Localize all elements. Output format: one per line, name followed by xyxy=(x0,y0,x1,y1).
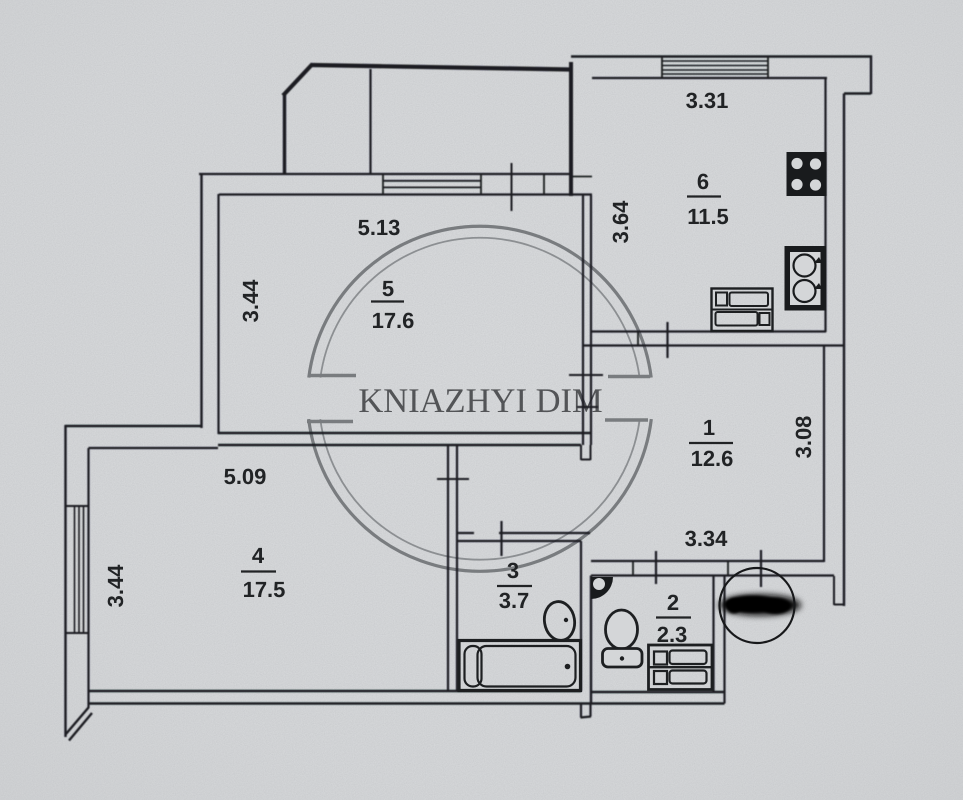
svg-text:5.13: 5.13 xyxy=(358,215,401,240)
svg-text:3.44: 3.44 xyxy=(238,279,263,323)
svg-text:3.64: 3.64 xyxy=(608,200,633,244)
svg-text:3.08: 3.08 xyxy=(791,416,816,459)
svg-text:3: 3 xyxy=(507,558,519,583)
svg-text:12.6: 12.6 xyxy=(691,446,734,471)
svg-text:3.7: 3.7 xyxy=(499,588,530,613)
svg-text:4: 4 xyxy=(252,543,265,568)
svg-text:17.6: 17.6 xyxy=(372,308,415,333)
svg-text:3.44: 3.44 xyxy=(103,564,128,608)
svg-text:5: 5 xyxy=(382,276,394,301)
svg-text:11.5: 11.5 xyxy=(687,204,729,229)
svg-text:17.5: 17.5 xyxy=(243,577,286,602)
svg-text:5.09: 5.09 xyxy=(224,464,267,489)
svg-text:3.34: 3.34 xyxy=(685,526,729,551)
svg-text:2.3: 2.3 xyxy=(657,622,688,647)
svg-text:6: 6 xyxy=(697,169,709,194)
svg-text:1: 1 xyxy=(703,415,715,440)
svg-text:KNIAZHYI DIM: KNIAZHYI DIM xyxy=(358,382,602,420)
svg-text:3.31: 3.31 xyxy=(686,88,729,113)
svg-text:2: 2 xyxy=(667,590,679,615)
